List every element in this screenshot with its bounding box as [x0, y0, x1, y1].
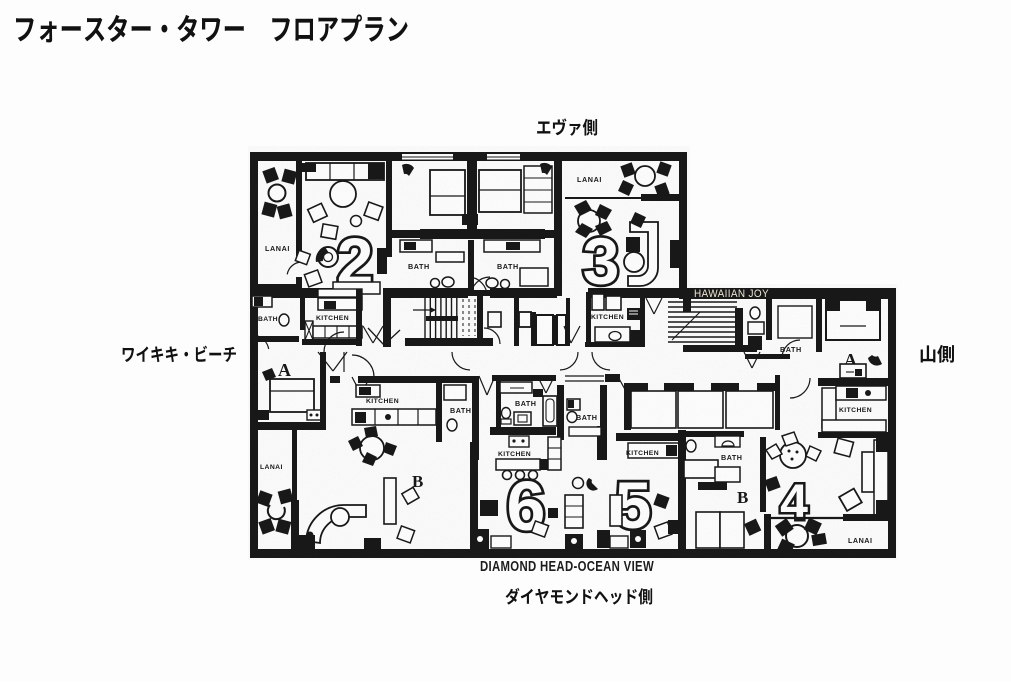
- svg-text:DIAMOND HEAD-OCEAN VIEW: DIAMOND HEAD-OCEAN VIEW: [480, 559, 654, 575]
